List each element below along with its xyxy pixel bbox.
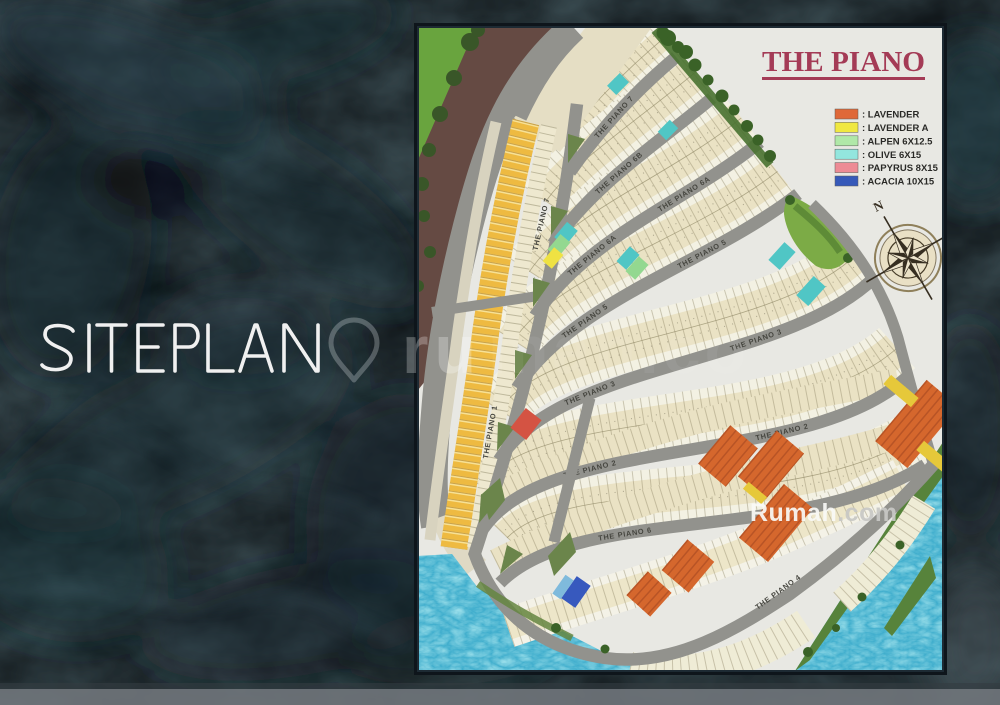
svg-text:mah.co: mah.co (488, 312, 750, 388)
svg-text:ru: ru (402, 312, 482, 388)
